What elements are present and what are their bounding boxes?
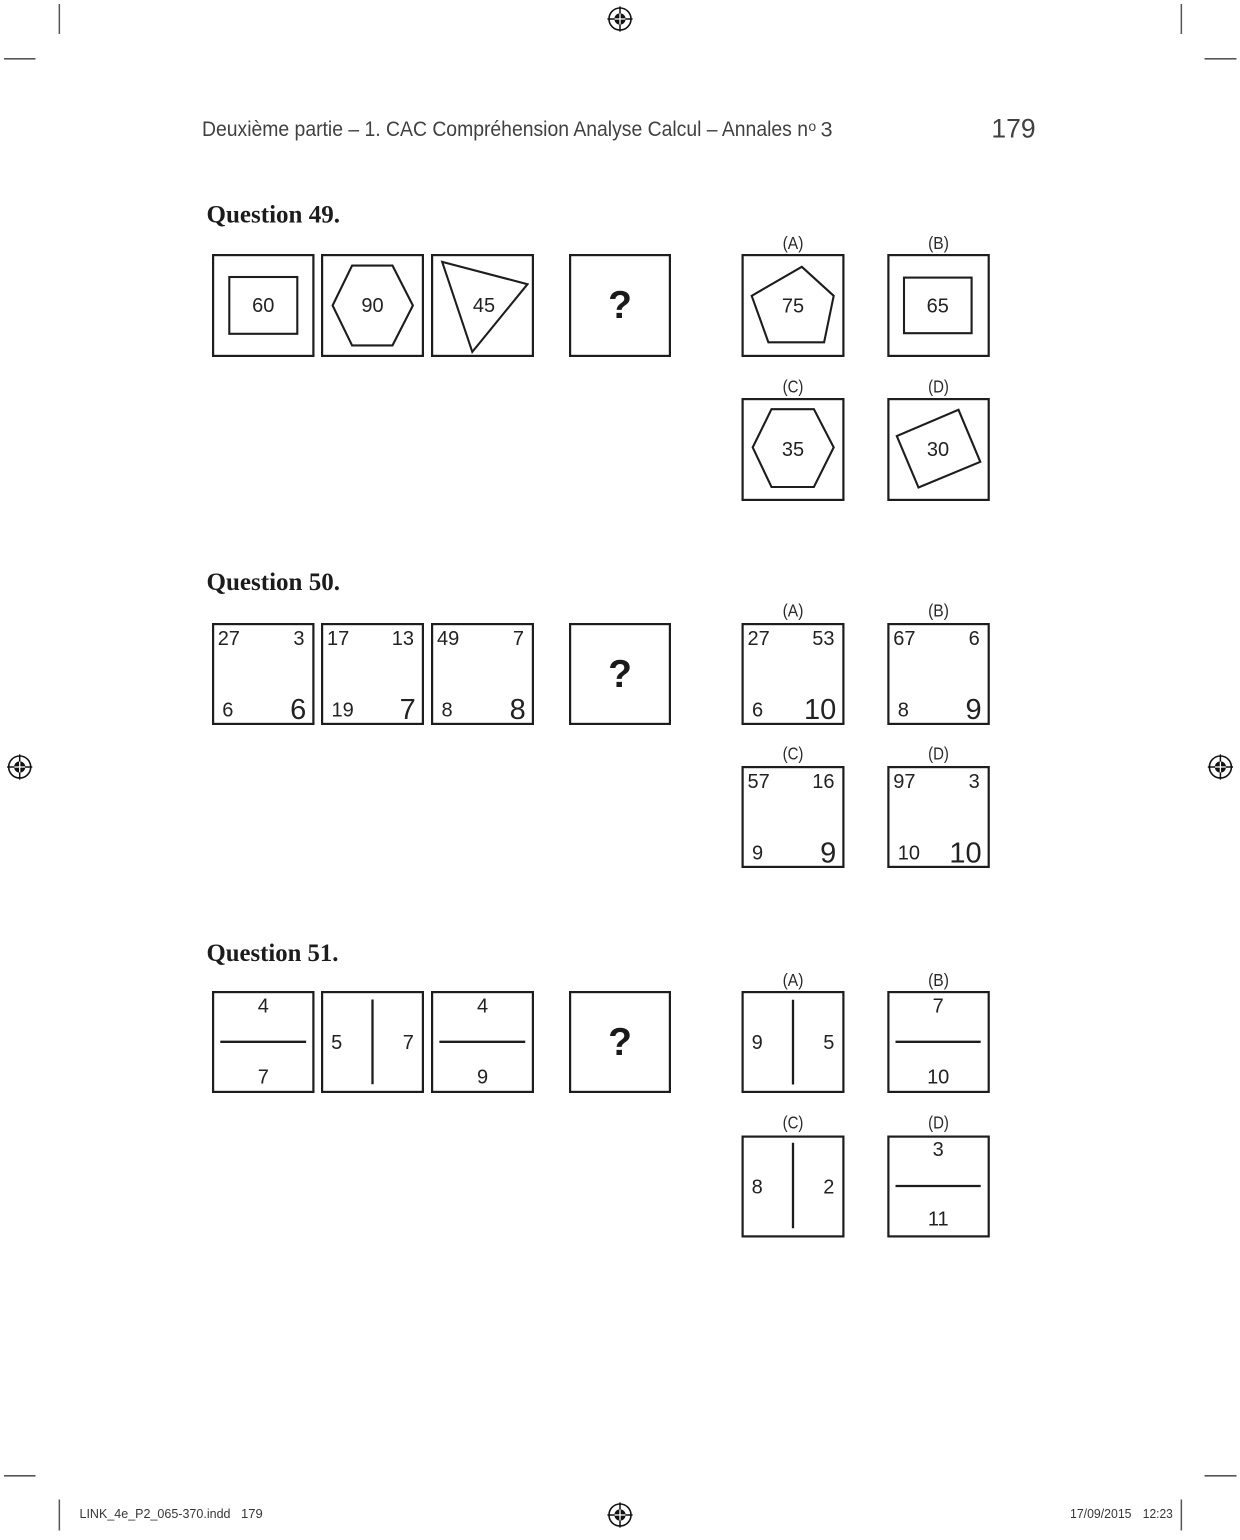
svg-text:7: 7 xyxy=(513,628,524,650)
svg-text:12:23: 12:23 xyxy=(1143,1507,1173,1521)
svg-text:8: 8 xyxy=(898,700,909,722)
svg-text:?: ? xyxy=(608,284,632,327)
svg-text:4: 4 xyxy=(477,995,488,1017)
svg-text:(B): (B) xyxy=(928,233,949,253)
svg-text:6: 6 xyxy=(290,694,306,726)
svg-text:4: 4 xyxy=(258,995,269,1017)
svg-text:8: 8 xyxy=(752,1176,763,1198)
svg-text:3: 3 xyxy=(293,628,304,650)
svg-text:57: 57 xyxy=(748,771,770,793)
svg-text:(C): (C) xyxy=(783,744,804,764)
svg-text:5: 5 xyxy=(331,1032,342,1054)
svg-text:(B): (B) xyxy=(928,970,949,990)
svg-text:o: o xyxy=(808,118,816,134)
svg-text:(D): (D) xyxy=(928,744,949,764)
svg-text:9: 9 xyxy=(965,694,981,726)
svg-text:5: 5 xyxy=(823,1032,834,1054)
svg-text:17/09/2015: 17/09/2015 xyxy=(1070,1507,1132,1521)
svg-text:2: 2 xyxy=(823,1176,834,1198)
svg-text:6: 6 xyxy=(752,700,763,722)
svg-text:7: 7 xyxy=(258,1066,269,1088)
svg-text:16: 16 xyxy=(812,771,834,793)
svg-text:67: 67 xyxy=(893,628,915,650)
svg-text:(A): (A) xyxy=(783,600,804,620)
svg-text:3: 3 xyxy=(933,1139,944,1161)
svg-text:(A): (A) xyxy=(783,233,804,253)
svg-text:3: 3 xyxy=(821,117,833,142)
svg-text:35: 35 xyxy=(782,439,804,461)
svg-text:9: 9 xyxy=(752,1032,763,1054)
svg-text:10: 10 xyxy=(949,837,981,869)
svg-text:179: 179 xyxy=(241,1506,263,1521)
svg-text:LINK_4e_P2_065-370.indd: LINK_4e_P2_065-370.indd xyxy=(80,1506,231,1521)
svg-text:7: 7 xyxy=(403,1032,414,1054)
svg-text:6: 6 xyxy=(222,700,233,722)
svg-text:9: 9 xyxy=(752,843,763,865)
svg-text:17: 17 xyxy=(327,628,349,650)
svg-text:10: 10 xyxy=(927,1066,949,1088)
svg-text:7: 7 xyxy=(933,995,944,1017)
svg-text:?: ? xyxy=(608,653,632,696)
svg-text:?: ? xyxy=(608,1021,632,1064)
svg-text:27: 27 xyxy=(748,628,770,650)
svg-text:Deuxième partie – 1. CAC Compr: Deuxième partie – 1. CAC Compréhension A… xyxy=(202,116,808,141)
svg-text:19: 19 xyxy=(332,700,354,722)
svg-text:45: 45 xyxy=(473,295,495,317)
svg-text:6: 6 xyxy=(969,628,980,650)
svg-text:8: 8 xyxy=(510,694,526,726)
svg-text:49: 49 xyxy=(437,628,459,650)
svg-text:27: 27 xyxy=(218,628,240,650)
svg-text:9: 9 xyxy=(477,1066,488,1088)
svg-text:Question 49.: Question 49. xyxy=(207,202,341,229)
svg-text:10: 10 xyxy=(898,843,920,865)
svg-text:9: 9 xyxy=(820,837,836,869)
svg-text:(D): (D) xyxy=(928,377,949,397)
svg-text:(A): (A) xyxy=(783,970,804,990)
svg-text:(B): (B) xyxy=(928,600,949,620)
svg-text:11: 11 xyxy=(928,1209,949,1231)
svg-text:90: 90 xyxy=(361,295,383,317)
svg-text:97: 97 xyxy=(893,771,915,793)
svg-text:(C): (C) xyxy=(783,377,804,397)
svg-text:Question 50.: Question 50. xyxy=(207,569,341,596)
svg-text:(D): (D) xyxy=(928,1112,949,1132)
svg-text:65: 65 xyxy=(927,295,949,317)
svg-text:8: 8 xyxy=(442,700,453,722)
svg-text:Question 51.: Question 51. xyxy=(207,940,339,967)
svg-text:7: 7 xyxy=(400,694,416,726)
svg-text:3: 3 xyxy=(969,771,980,793)
svg-text:75: 75 xyxy=(782,295,804,317)
svg-text:179: 179 xyxy=(991,113,1035,143)
svg-text:13: 13 xyxy=(392,628,414,650)
svg-text:(C): (C) xyxy=(783,1112,804,1132)
svg-text:53: 53 xyxy=(812,628,834,650)
svg-text:30: 30 xyxy=(927,439,949,461)
svg-text:10: 10 xyxy=(804,694,836,726)
svg-text:60: 60 xyxy=(252,295,274,317)
